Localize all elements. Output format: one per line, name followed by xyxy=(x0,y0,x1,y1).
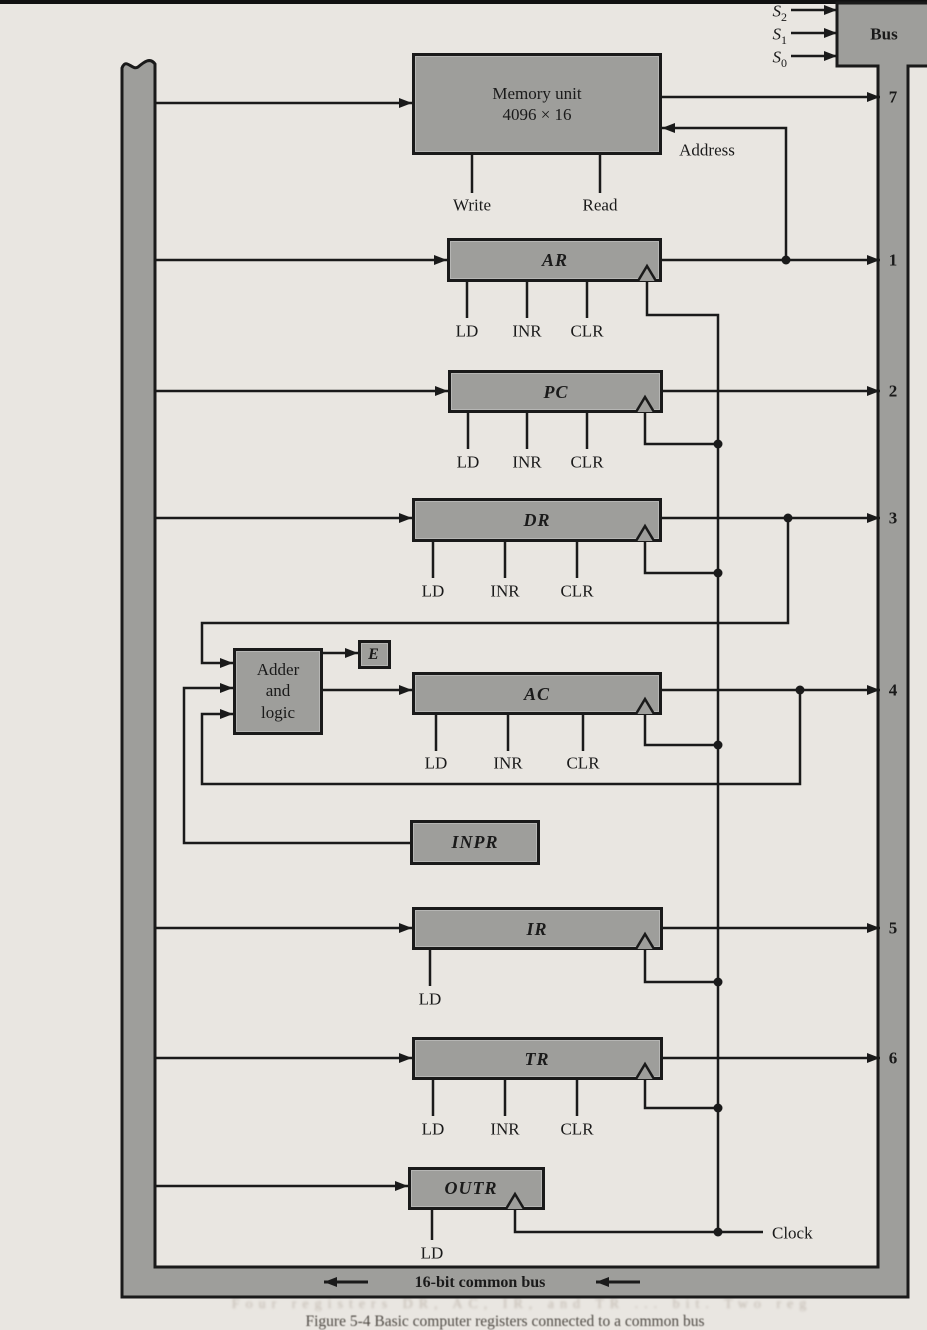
tr-inr-label: INR xyxy=(490,1121,519,1138)
ac-ld-label: LD xyxy=(425,755,448,772)
ar-ld-label: LD xyxy=(456,323,479,340)
pc-ld-label: LD xyxy=(457,454,480,471)
outr-ld-label: LD xyxy=(421,1245,444,1262)
register-outr-label: OUTR xyxy=(445,1179,498,1197)
adder-line2: and xyxy=(257,680,299,701)
junction-clock-ir xyxy=(714,978,723,987)
bus-select-s0: S0 xyxy=(773,49,788,66)
bus-point-4: 4 xyxy=(889,682,898,699)
junction-ac-feedback xyxy=(796,686,805,695)
wires-ar-controls xyxy=(467,282,587,318)
wires-pc-controls xyxy=(468,413,587,449)
register-dr-label: DR xyxy=(523,511,550,529)
wire-ac-clock xyxy=(645,715,718,745)
wire-dr-clock xyxy=(645,542,718,573)
register-inpr-label: INPR xyxy=(451,833,498,851)
s0-base: S xyxy=(773,48,782,67)
tr-clr-label: CLR xyxy=(560,1121,593,1138)
tr-ld-label: LD xyxy=(422,1121,445,1138)
s2-base: S xyxy=(773,2,782,21)
wire-outr-clock-to-clock xyxy=(515,1210,763,1232)
memory-write-label: Write xyxy=(453,197,491,214)
wire-clock-trunk xyxy=(647,282,718,1232)
bus-label: Bus xyxy=(870,26,897,43)
memory-size: 4096 × 16 xyxy=(492,104,581,125)
s2-sub: 2 xyxy=(781,10,787,24)
register-tr-label: TR xyxy=(524,1050,549,1068)
memory-read-label: Read xyxy=(583,197,618,214)
adder-logic-label: Adder and logic xyxy=(257,659,299,723)
ac-clr-label: CLR xyxy=(566,755,599,772)
dr-inr-label: INR xyxy=(490,583,519,600)
dr-clr-label: CLR xyxy=(560,583,593,600)
bus-point-7: 7 xyxy=(889,89,898,106)
s0-sub: 0 xyxy=(781,56,787,70)
clock-triangle-ar xyxy=(638,266,656,281)
ar-clr-label: CLR xyxy=(570,323,603,340)
dr-ld-label: LD xyxy=(422,583,445,600)
clock-triangle-pc xyxy=(636,397,654,412)
junction-ar-address xyxy=(782,256,791,265)
bus-select-s2: S2 xyxy=(773,3,788,20)
bus-point-6: 6 xyxy=(889,1050,898,1067)
clock-triangle-ir xyxy=(636,934,654,949)
clock-triangle-outr xyxy=(506,1194,524,1209)
s1-sub: 1 xyxy=(781,33,787,47)
pc-inr-label: INR xyxy=(512,454,541,471)
address-label: Address xyxy=(679,142,735,159)
wires-tr-controls xyxy=(433,1080,577,1116)
scanned-figure-page: Four registers DR, AC, IR, and TR ... bi… xyxy=(0,0,927,1330)
memory-unit-label: Memory unit 4096 × 16 xyxy=(492,83,581,126)
register-ac-label: AC xyxy=(524,685,550,703)
junction-dr-adder xyxy=(784,514,793,523)
junction-clock-outr xyxy=(714,1228,723,1237)
adder-line1: Adder xyxy=(257,659,299,680)
bus-select-s1: S1 xyxy=(773,26,788,43)
junction-clock-dr xyxy=(714,569,723,578)
e-flipflop-label: E xyxy=(368,647,380,663)
common-bus-loop xyxy=(122,3,927,1297)
wire-pc-clock xyxy=(645,413,718,444)
wires-ac-controls xyxy=(436,715,583,751)
figure-caption: Figure 5-4 Basic computer registers conn… xyxy=(305,1313,704,1330)
register-ar-label: AR xyxy=(542,251,568,269)
register-ir-label: IR xyxy=(526,920,547,938)
wire-tr-clock xyxy=(645,1080,718,1108)
bus-point-5: 5 xyxy=(889,920,898,937)
wires-dr-controls xyxy=(433,542,577,578)
ir-ld-label: LD xyxy=(419,991,442,1008)
common-bus-label: 16-bit common bus xyxy=(415,1275,546,1291)
pc-clr-label: CLR xyxy=(570,454,603,471)
junction-clock-ac xyxy=(714,741,723,750)
bus-point-2: 2 xyxy=(889,383,898,400)
bus-point-3: 3 xyxy=(889,510,898,527)
adder-line3: logic xyxy=(257,702,299,723)
clock-triangle-ac xyxy=(636,699,654,714)
ac-inr-label: INR xyxy=(493,755,522,772)
junction-clock-pc xyxy=(714,440,723,449)
junction-clock-tr xyxy=(714,1104,723,1113)
clock-triangle-dr xyxy=(636,526,654,541)
s1-base: S xyxy=(773,25,782,44)
ar-inr-label: INR xyxy=(512,323,541,340)
clock-label: Clock xyxy=(772,1225,813,1242)
memory-title: Memory unit xyxy=(492,83,581,104)
wire-ir-clock xyxy=(645,950,718,982)
clock-triangle-tr xyxy=(636,1064,654,1079)
bus-point-1: 1 xyxy=(889,252,898,269)
register-pc-label: PC xyxy=(543,383,568,401)
